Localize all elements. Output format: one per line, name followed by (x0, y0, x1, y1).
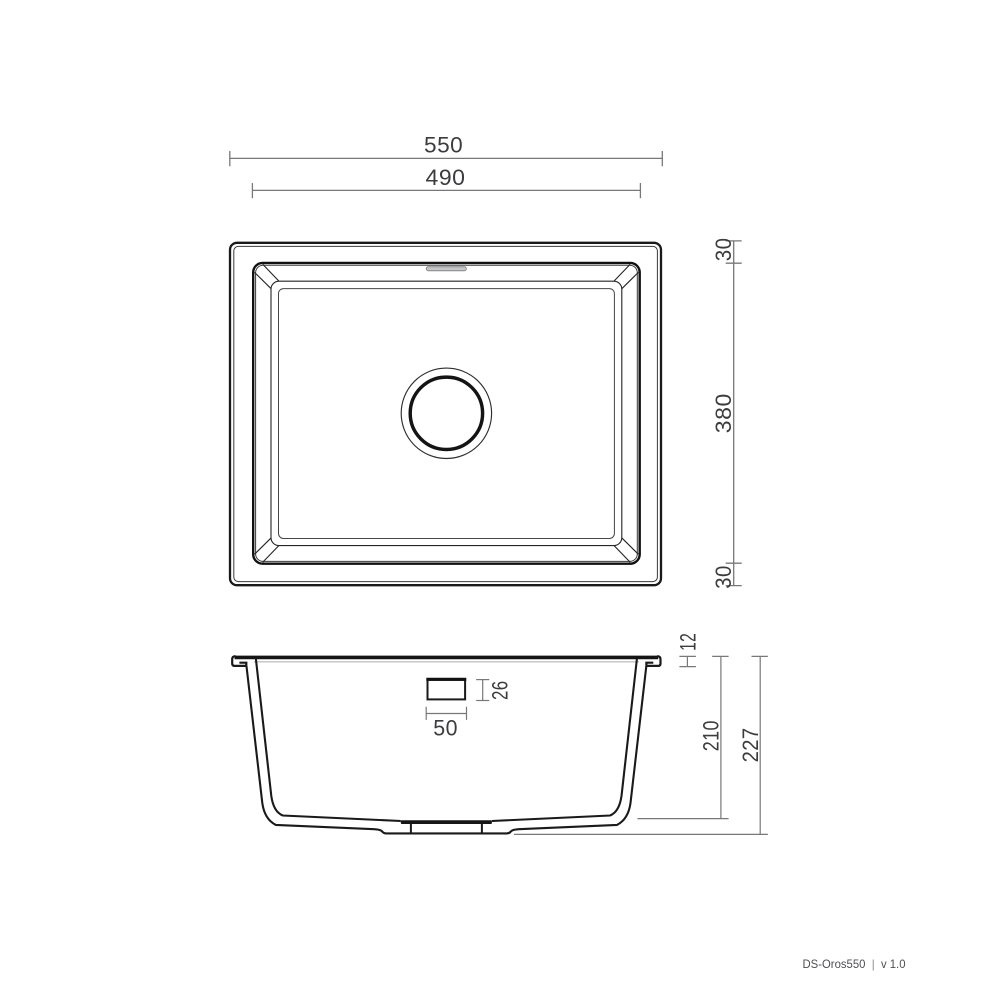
svg-text:210: 210 (699, 720, 724, 751)
svg-text:380: 380 (711, 393, 736, 433)
svg-text:12: 12 (676, 633, 701, 651)
svg-text:550: 550 (424, 133, 463, 158)
svg-text:DS-Oros550 | v 1.0: DS-Oros550 | v 1.0 (803, 958, 906, 971)
svg-text:30: 30 (711, 565, 736, 589)
svg-text:30: 30 (711, 238, 736, 262)
svg-text:227: 227 (738, 727, 763, 762)
svg-text:26: 26 (487, 681, 512, 701)
svg-text:490: 490 (426, 165, 466, 190)
svg-text:50: 50 (433, 715, 458, 740)
